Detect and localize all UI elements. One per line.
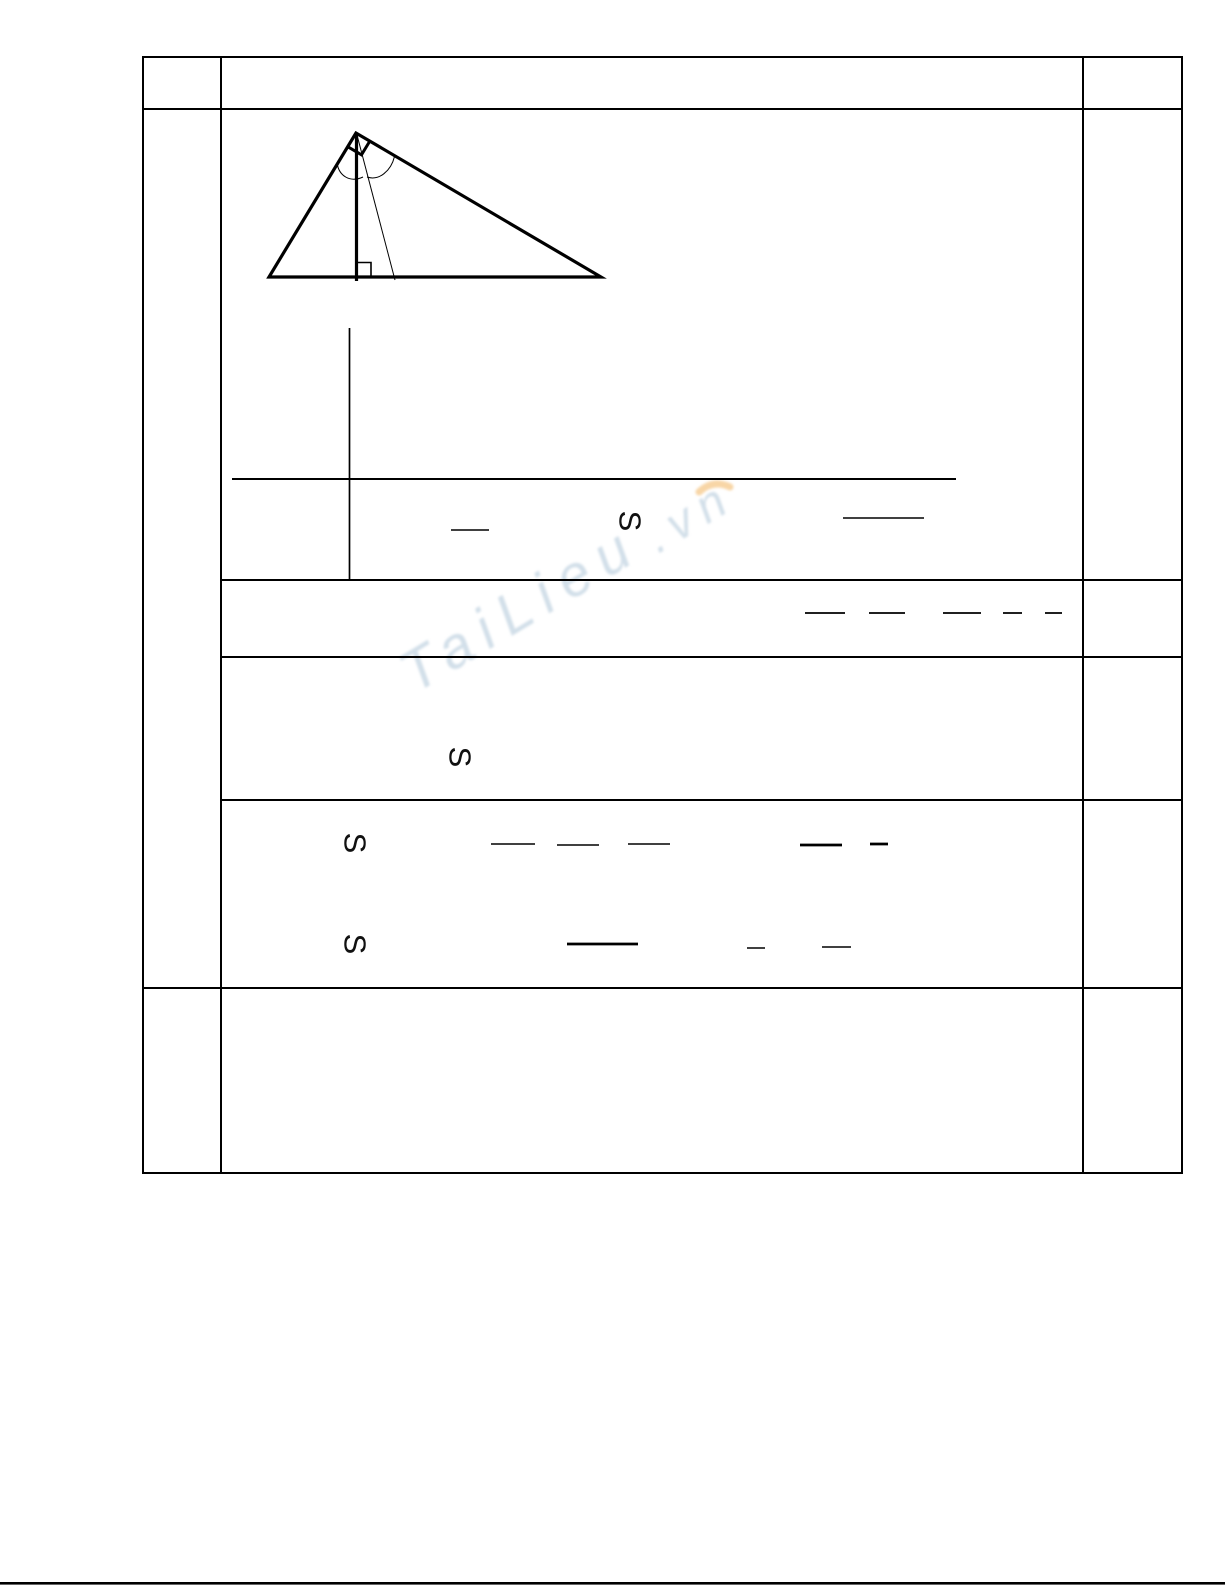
svg-text:TaiLieu: TaiLieu xyxy=(388,511,652,705)
svg-text:S: S xyxy=(338,833,373,854)
svg-text:S: S xyxy=(338,934,373,955)
svg-text:S: S xyxy=(613,511,648,532)
svg-text:S: S xyxy=(443,747,478,768)
